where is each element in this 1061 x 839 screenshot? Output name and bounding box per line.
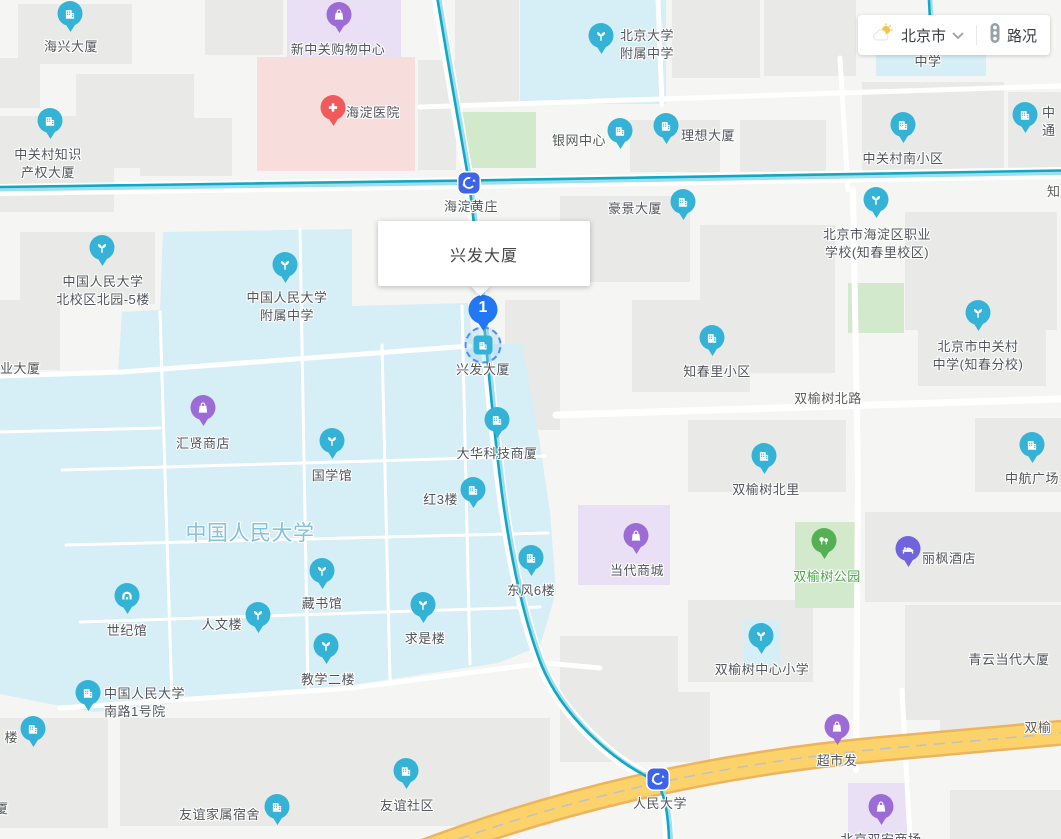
chevron-down-icon: [952, 27, 964, 44]
subway-station-icon[interactable]: [648, 769, 669, 790]
poi-pin[interactable]: [76, 680, 101, 713]
poi-pin[interactable]: [864, 187, 889, 220]
poi-pin[interactable]: [58, 1, 83, 34]
infowindow[interactable]: 兴发大厦: [378, 221, 590, 286]
poi-pin[interactable]: [327, 2, 352, 35]
weather-icon: [871, 23, 895, 47]
poi-label: 北京市海淀区职业学校(知春里校区): [823, 226, 931, 262]
poi-pin[interactable]: [966, 300, 991, 333]
poi-label: 友谊社区: [380, 797, 434, 815]
poi-label: 世纪馆: [107, 622, 148, 640]
poi-pin[interactable]: [519, 545, 544, 578]
poi-label: 海兴大厦: [44, 38, 98, 56]
poi-pin[interactable]: [310, 558, 335, 591]
poi-label: 红3楼: [423, 491, 458, 509]
poi-label: 海淀医院: [346, 104, 400, 122]
poi-pin[interactable]: [21, 716, 46, 749]
map-text-label: 中国人民大学: [186, 520, 315, 547]
poi-pin[interactable]: [321, 95, 346, 128]
selected-result-pin[interactable]: 1: [469, 295, 498, 333]
poi-label: 中通: [1042, 104, 1056, 140]
poi-pin[interactable]: [812, 528, 837, 561]
poi-pin[interactable]: [749, 623, 774, 656]
poi-pin[interactable]: [314, 633, 339, 666]
map-text-label: 知春: [1047, 183, 1061, 200]
poi-pin[interactable]: [1020, 432, 1045, 465]
map-text-label: 厦: [0, 800, 9, 817]
poi-label: 友谊家属宿舍: [179, 806, 260, 824]
traffic-light-icon: [989, 22, 1001, 48]
poi-label: 国学馆: [312, 467, 353, 485]
poi-pin[interactable]: [320, 428, 345, 461]
poi-pin[interactable]: [485, 407, 510, 440]
poi-label: 东风6楼: [507, 582, 555, 600]
poi-label: 中国人民大学附属中学: [246, 289, 327, 325]
poi-pin[interactable]: [394, 758, 419, 791]
poi-label: 中航广场: [1005, 470, 1059, 488]
poi-label: 人文楼: [201, 616, 242, 634]
poi-pin[interactable]: [265, 794, 290, 827]
city-selector[interactable]: 北京市: [871, 23, 964, 47]
poi-label: 中关村知识产权大厦: [14, 146, 82, 182]
poi-pin[interactable]: [90, 235, 115, 268]
poi-label: 双榆树公园: [793, 568, 861, 586]
poi-label: 藏书馆: [302, 595, 343, 613]
poi-label: 双榆树中心小学: [715, 661, 810, 679]
poi-pin[interactable]: [700, 325, 725, 358]
poi-pin[interactable]: [825, 714, 850, 747]
map-text-label: 中学: [914, 53, 941, 70]
poi-label: 北京双安商场: [840, 831, 921, 839]
poi-label: 教学二楼: [301, 671, 355, 689]
poi-label: 双榆树北里: [732, 481, 800, 499]
poi-pin[interactable]: [752, 443, 777, 476]
station-label: 海淀黄庄: [444, 198, 498, 216]
subway-station-icon[interactable]: [459, 173, 480, 194]
poi-pin[interactable]: [624, 523, 649, 556]
traffic-label: 路况: [1007, 25, 1037, 46]
poi-pin[interactable]: [654, 113, 679, 146]
poi-label: 大华科技商厦: [456, 445, 537, 463]
map-text-label: 业大厦: [0, 360, 41, 377]
poi-pin[interactable]: [246, 602, 271, 635]
station-label: 人民大学: [633, 795, 687, 813]
building-icon: [474, 336, 493, 355]
poi-label: 超市发: [817, 752, 858, 770]
poi-label: 银网中心: [552, 132, 606, 150]
poi-pin[interactable]: [461, 477, 486, 510]
poi-pin[interactable]: [608, 118, 633, 151]
poi-pin[interactable]: [896, 536, 921, 569]
poi-label: 知春里小区: [683, 363, 751, 381]
poi-label: 求是楼: [405, 630, 446, 648]
poi-pin[interactable]: [1013, 102, 1038, 135]
map-controls: 北京市 路况: [858, 15, 1050, 55]
map-text-label: 青云当代大厦: [968, 651, 1049, 668]
poi-pin[interactable]: [115, 583, 140, 616]
poi-label: 当代商城: [610, 562, 664, 580]
poi-pin[interactable]: [671, 189, 696, 222]
poi-pin[interactable]: [191, 395, 216, 428]
poi-label: 豪景大厦: [608, 200, 662, 218]
poi-pin[interactable]: [273, 252, 298, 285]
traffic-toggle[interactable]: 路况: [989, 22, 1037, 48]
map-text-label: 双榆树北路: [794, 390, 862, 407]
poi-label: 汇贤商店: [176, 435, 230, 453]
poi-label: 理想大厦: [681, 127, 735, 145]
selected-poi-label: 兴发大厦: [456, 361, 510, 379]
map-viewport[interactable]: 海兴大厦新中关购物中心海淀医院中关村知识产权大厦北京大学附属中学银网中心理想大厦…: [0, 0, 1061, 839]
poi-pin[interactable]: [411, 592, 436, 625]
poi-label: 中国人民大学北校区北园-5楼: [56, 273, 150, 309]
poi-label: 中关村南小区: [862, 150, 943, 168]
poi-pin[interactable]: [38, 108, 63, 141]
city-label: 北京市: [901, 25, 946, 46]
poi-pin[interactable]: [891, 112, 916, 145]
infowindow-title: 兴发大厦: [450, 242, 518, 266]
map-text-label: 双榆: [1024, 719, 1051, 736]
poi-pin[interactable]: [869, 794, 894, 827]
poi-label: 新中关购物中心: [291, 41, 386, 59]
selected-result-number: 1: [469, 299, 498, 317]
control-divider: [976, 25, 977, 45]
poi-label: 丽枫酒店: [922, 550, 976, 568]
poi-label: 北京市中关村中学(知春分校): [933, 338, 1024, 374]
poi-label: 中国人民大学南路1号院: [104, 685, 185, 721]
poi-label: 北京大学附属中学: [620, 27, 674, 63]
poi-label: 楼: [4, 729, 18, 747]
poi-pin[interactable]: [589, 23, 614, 56]
